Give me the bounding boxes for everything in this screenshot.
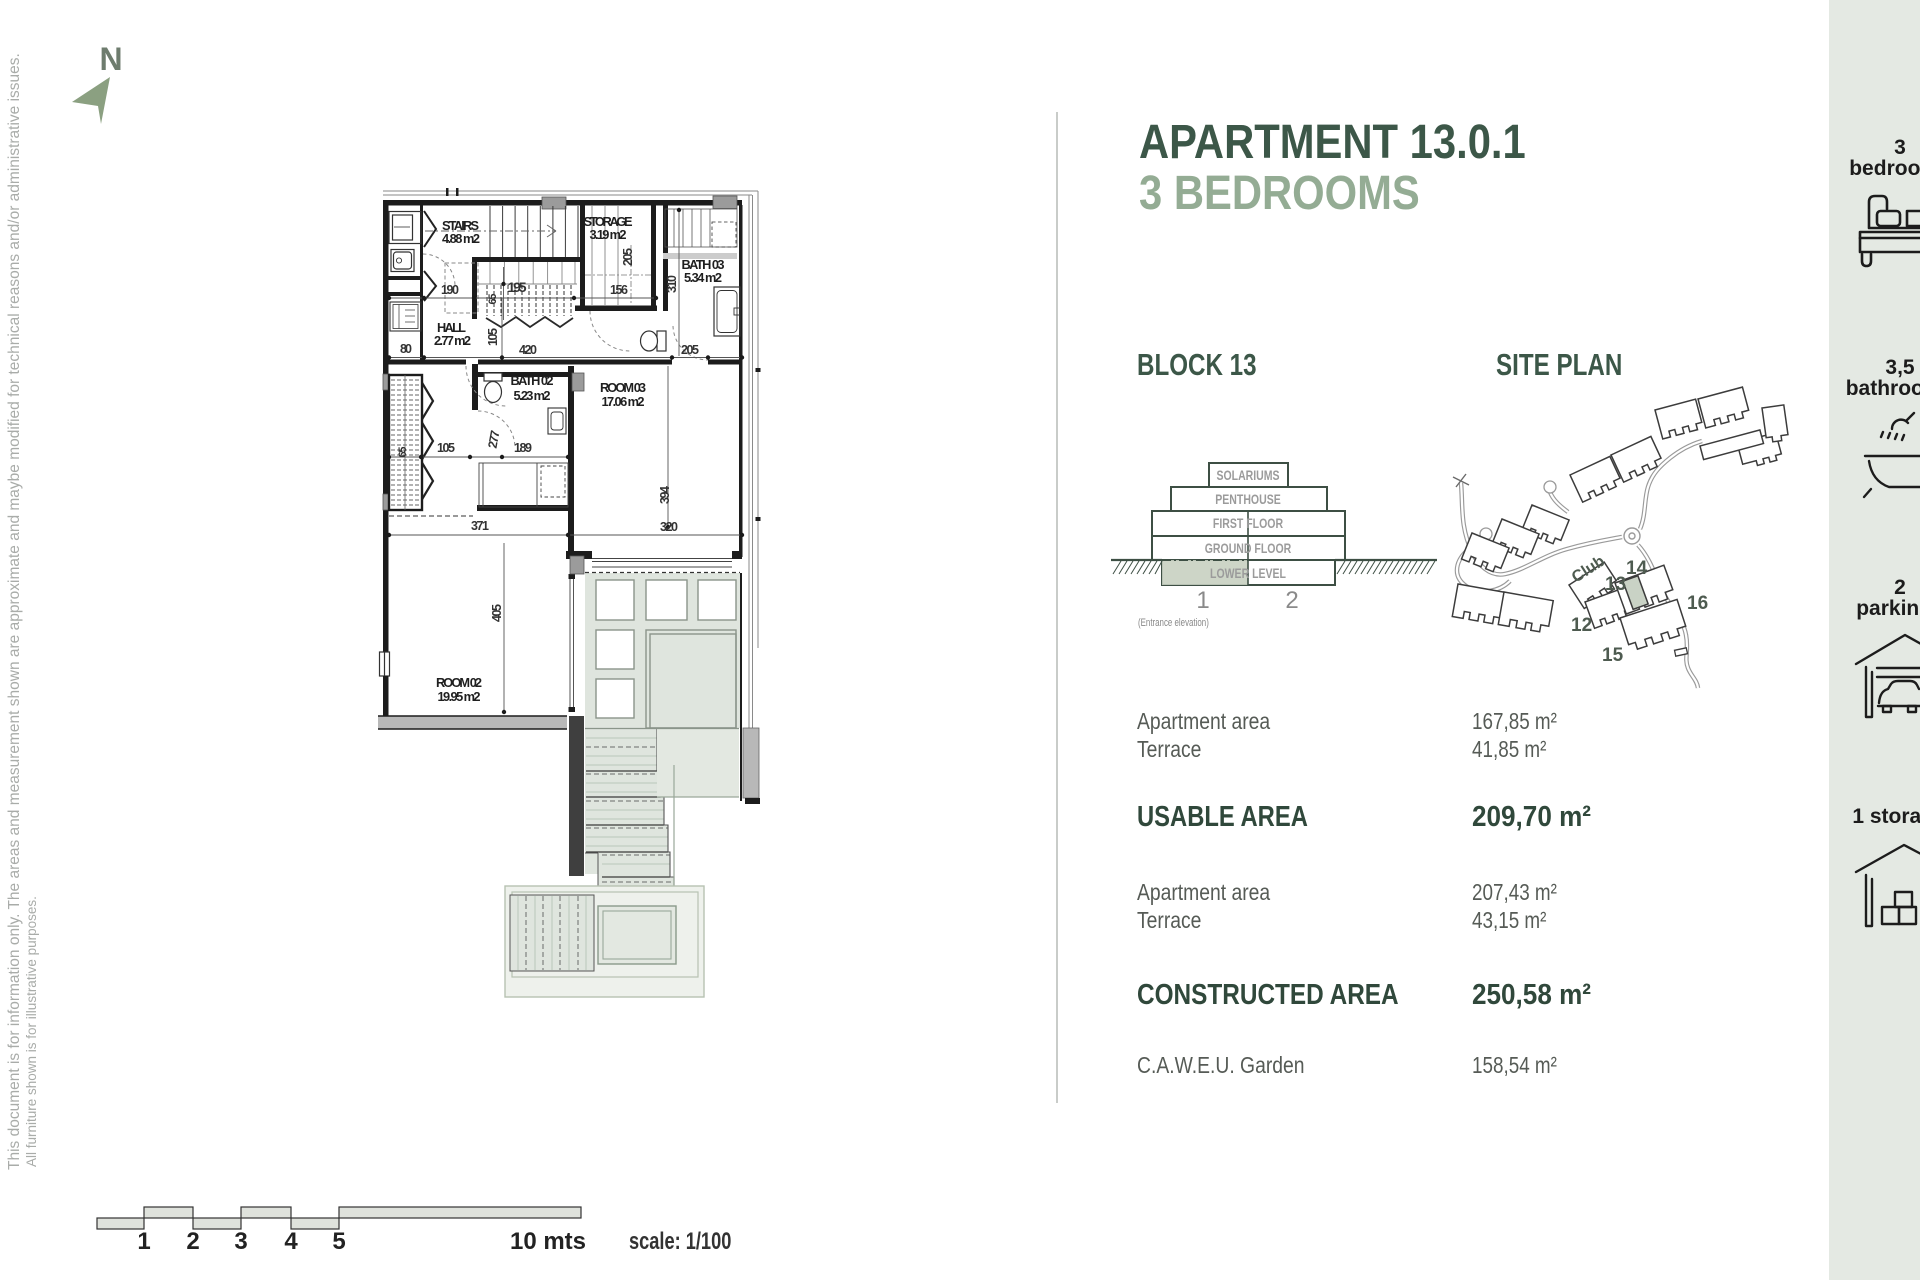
svg-text:GROUND FLOOR: GROUND FLOOR <box>1205 541 1292 557</box>
svg-text:405: 405 <box>490 604 504 622</box>
svg-text:80: 80 <box>400 342 412 356</box>
svg-text:12: 12 <box>1571 615 1592 636</box>
svg-text:105: 105 <box>486 328 500 346</box>
svg-text:1: 1 <box>1196 587 1209 614</box>
svg-text:LOWER LEVEL: LOWER LEVEL <box>1210 566 1287 582</box>
svg-text:105: 105 <box>437 441 455 455</box>
svg-text:2: 2 <box>1285 587 1298 614</box>
svg-text:65: 65 <box>487 294 499 305</box>
svg-text:5: 5 <box>332 1228 345 1255</box>
svg-text:17.06 m2: 17.06 m2 <box>602 394 645 409</box>
svg-text:SOLARIUMS: SOLARIUMS <box>1216 468 1279 484</box>
svg-text:1: 1 <box>137 1228 150 1255</box>
svg-text:2: 2 <box>186 1228 199 1255</box>
svg-text:310: 310 <box>665 275 679 293</box>
svg-text:(Entrance elevation): (Entrance elevation) <box>1138 617 1209 630</box>
svg-text:277: 277 <box>486 429 503 449</box>
svg-text:5.23 m2: 5.23 m2 <box>514 388 551 403</box>
svg-text:2.77 m2: 2.77 m2 <box>434 333 471 348</box>
svg-text:371: 371 <box>471 519 489 533</box>
svg-text:19.95 m2: 19.95 m2 <box>438 689 481 704</box>
svg-text:156: 156 <box>610 283 628 297</box>
svg-text:394: 394 <box>658 486 672 504</box>
svg-text:3: 3 <box>234 1228 247 1255</box>
svg-text:420: 420 <box>519 343 537 357</box>
svg-text:3.19 m2: 3.19 m2 <box>590 227 627 242</box>
svg-text:FIRST FLOOR: FIRST FLOOR <box>1213 516 1283 532</box>
svg-text:10 mts: 10 mts <box>510 1228 586 1255</box>
svg-text:195: 195 <box>508 279 527 295</box>
svg-text:13: 13 <box>1605 574 1626 595</box>
svg-text:PENTHOUSE: PENTHOUSE <box>1215 492 1280 508</box>
svg-text:320: 320 <box>660 520 678 534</box>
svg-text:5.34 m2: 5.34 m2 <box>684 270 722 285</box>
svg-text:ROOM 03: ROOM 03 <box>600 380 646 395</box>
svg-text:189: 189 <box>514 441 532 455</box>
svg-text:190: 190 <box>441 283 459 297</box>
svg-text:15: 15 <box>1602 645 1624 666</box>
svg-text:205: 205 <box>621 248 635 266</box>
svg-text:BATH 02: BATH 02 <box>511 373 554 388</box>
svg-text:65: 65 <box>397 447 409 458</box>
svg-text:14: 14 <box>1626 558 1648 579</box>
svg-text:4: 4 <box>284 1228 298 1255</box>
svg-text:205: 205 <box>681 343 699 357</box>
svg-text:N: N <box>99 41 122 77</box>
svg-text:ROOM 02: ROOM 02 <box>436 675 482 690</box>
svg-text:4.88 m2: 4.88 m2 <box>442 231 480 246</box>
svg-text:scale: 1/100: scale: 1/100 <box>629 1228 731 1255</box>
svg-text:16: 16 <box>1687 593 1708 614</box>
